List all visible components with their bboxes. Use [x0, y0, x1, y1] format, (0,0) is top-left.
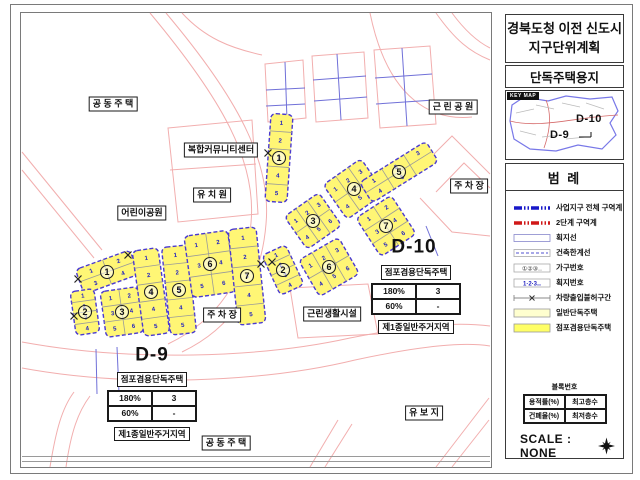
blocknum-cell: 건폐율(%) — [524, 409, 565, 423]
district-table-cell: 3 — [416, 284, 460, 299]
scale-text: SCALE : NONE — [520, 432, 598, 460]
district-name-label: D-9 — [132, 344, 172, 367]
legend-item: 점포겸용단독주택 — [513, 320, 623, 335]
svg-text:6: 6 — [326, 262, 331, 272]
parcel-block-D-10-5: 123455 — [360, 141, 439, 203]
box-line-symbol — [513, 233, 551, 243]
district-name-label: D-10 — [388, 236, 439, 259]
north-arrow-icon — [598, 436, 615, 456]
legend-items: 사업지구 전체 구역계2단계 구역계획지선건축한계선①②③‥가구번호1·2·3‥… — [506, 191, 623, 335]
keymap-d10-label: D-10 — [576, 113, 602, 125]
land-use-label: 주 차 장 — [203, 308, 241, 323]
no-vehicle-symbol — [513, 293, 551, 303]
blocknum-cell: 용적률(%) — [524, 395, 565, 409]
land-use-label: 복합커뮤니티센터 — [184, 143, 258, 158]
land-use-label: 주 차 장 — [450, 179, 488, 194]
blocknum-title: 블록번호 — [506, 382, 623, 392]
legend-item: 차량출입불허구간 — [513, 290, 623, 305]
district-table-cell: 60% — [108, 406, 152, 421]
svg-text:1·2·3‥: 1·2·3‥ — [523, 281, 541, 287]
svg-text:7: 7 — [383, 221, 388, 231]
legend-title: 범 례 — [506, 164, 623, 191]
svg-text:2: 2 — [280, 265, 285, 275]
land-use-label: 공 동 주 택 — [202, 436, 251, 451]
nums-symbol: 1·2·3‥ — [513, 278, 551, 288]
legend-item-label: 건축한계선 — [556, 247, 591, 258]
land-use-label: 유 치 원 — [193, 188, 231, 203]
svg-text:4: 4 — [351, 184, 356, 194]
sheet-title-box: 경북도청 이전 신도시 지구단위계획 — [505, 14, 624, 63]
district-table-header: 점포겸용단독주택 — [117, 372, 188, 387]
svg-text:①②③‥: ①②③‥ — [522, 265, 542, 272]
legend-item-label: 2단계 구역계 — [556, 217, 597, 228]
parcel-block-D-9-6: 1234566 — [184, 230, 236, 298]
svg-text:4: 4 — [148, 287, 153, 297]
parcel-block-D-10-1: 123451 — [265, 113, 293, 202]
district-zoning-label: 제1종일반주거지역 — [114, 427, 189, 442]
blocknum-section: 블록번호 용적률(%)최고층수건폐율(%)최저층수 — [506, 382, 623, 424]
scale-row: SCALE : NONE — [506, 424, 623, 460]
keymap-box: KEY MAP D-10 D-9 — [505, 90, 624, 160]
blocknum-cell: 최고층수 — [565, 395, 606, 409]
legend-item-label: 가구번호 — [556, 262, 584, 273]
land-use-label: 공 동 주 택 — [89, 97, 138, 112]
parcel-block-D-9-2: 12342 — [70, 289, 100, 336]
legend-item: 일반단독주택 — [513, 305, 623, 320]
legend-item: 2단계 구역계 — [513, 215, 623, 230]
keymap-chip: KEY MAP — [507, 92, 539, 100]
legend-item: 건축한계선 — [513, 245, 623, 260]
district-table-cell: 60% — [372, 299, 416, 314]
district-table-cell: - — [152, 406, 196, 421]
svg-text:7: 7 — [244, 271, 249, 281]
svg-text:2: 2 — [82, 307, 87, 317]
svg-text:6: 6 — [207, 259, 212, 269]
legend-item: 획지선 — [513, 230, 623, 245]
sheet-subtitle: 단독주택용지 — [530, 67, 599, 86]
svg-text:1: 1 — [276, 153, 281, 163]
district-table-cell: - — [416, 299, 460, 314]
district-table-D-9: 점포겸용단독주택180%360%-제1종일반주거지역 — [107, 372, 197, 441]
legend-item: 사업지구 전체 구역계 — [513, 200, 623, 215]
legend-item-label: 획지번호 — [556, 277, 584, 288]
district-table-cell: 3 — [152, 391, 196, 406]
legend-item: 1·2·3‥획지번호 — [513, 275, 623, 290]
land-use-label: 어린이공원 — [117, 206, 166, 221]
land-use-label: 유 보 지 — [405, 406, 443, 421]
parcel-block-D-9-3: 1234563 — [100, 287, 144, 338]
legend-item-label: 사업지구 전체 구역계 — [556, 202, 622, 213]
district-table-grid: 180%360%- — [107, 390, 197, 422]
boundary-blue-symbol — [513, 203, 551, 213]
svg-text:3: 3 — [310, 216, 315, 226]
plan-sheet: 1234112342123456312345412345512345661234… — [0, 0, 640, 480]
keymap-d9-label: D-9 — [550, 129, 569, 141]
district-table-D-10: 점포겸용단독주택180%360%-제1종일반주거지역 — [371, 265, 461, 334]
district-table-cell: 180% — [108, 391, 152, 406]
district-zoning-label: 제1종일반주거지역 — [378, 320, 453, 335]
district-table-header: 점포겸용단독주택 — [381, 265, 452, 280]
keymap-drawing — [506, 91, 621, 157]
legend-item-label: 획지선 — [556, 232, 577, 243]
svg-text:3: 3 — [119, 307, 124, 317]
svg-text:1: 1 — [104, 267, 109, 277]
svg-text:5: 5 — [176, 285, 181, 295]
fill-strong-symbol — [513, 323, 551, 333]
sheet-title-line1: 경북도청 이전 신도시 — [507, 20, 622, 39]
boundary-red-symbol — [513, 218, 551, 228]
sheet-subtitle-box: 단독주택용지 — [505, 65, 624, 88]
legend-box: 범 례 사업지구 전체 구역계2단계 구역계획지선건축한계선①②③‥가구번호1·… — [505, 163, 624, 459]
sheet-title-line2: 지구단위계획 — [529, 39, 601, 58]
box-dash-symbol — [513, 248, 551, 258]
svg-text:5: 5 — [396, 167, 401, 177]
legend-item: ①②③‥가구번호 — [513, 260, 623, 275]
blocknum-cell: 최저층수 — [565, 409, 606, 423]
fill-light-symbol — [513, 308, 551, 318]
land-use-label: 근 린 공 원 — [429, 100, 478, 115]
district-table-cell: 180% — [372, 284, 416, 299]
legend-item-label: 점포겸용단독주택 — [556, 322, 611, 333]
circled-nums-symbol: ①②③‥ — [513, 263, 551, 273]
legend-item-label: 일반단독주택 — [556, 307, 597, 318]
blocknum-table: 용적률(%)최고층수건폐율(%)최저층수 — [523, 394, 607, 424]
district-table-grid: 180%360%- — [371, 283, 461, 315]
land-use-label: 근린생활시설 — [303, 307, 361, 322]
legend-item-label: 차량출입불허구간 — [556, 292, 611, 303]
